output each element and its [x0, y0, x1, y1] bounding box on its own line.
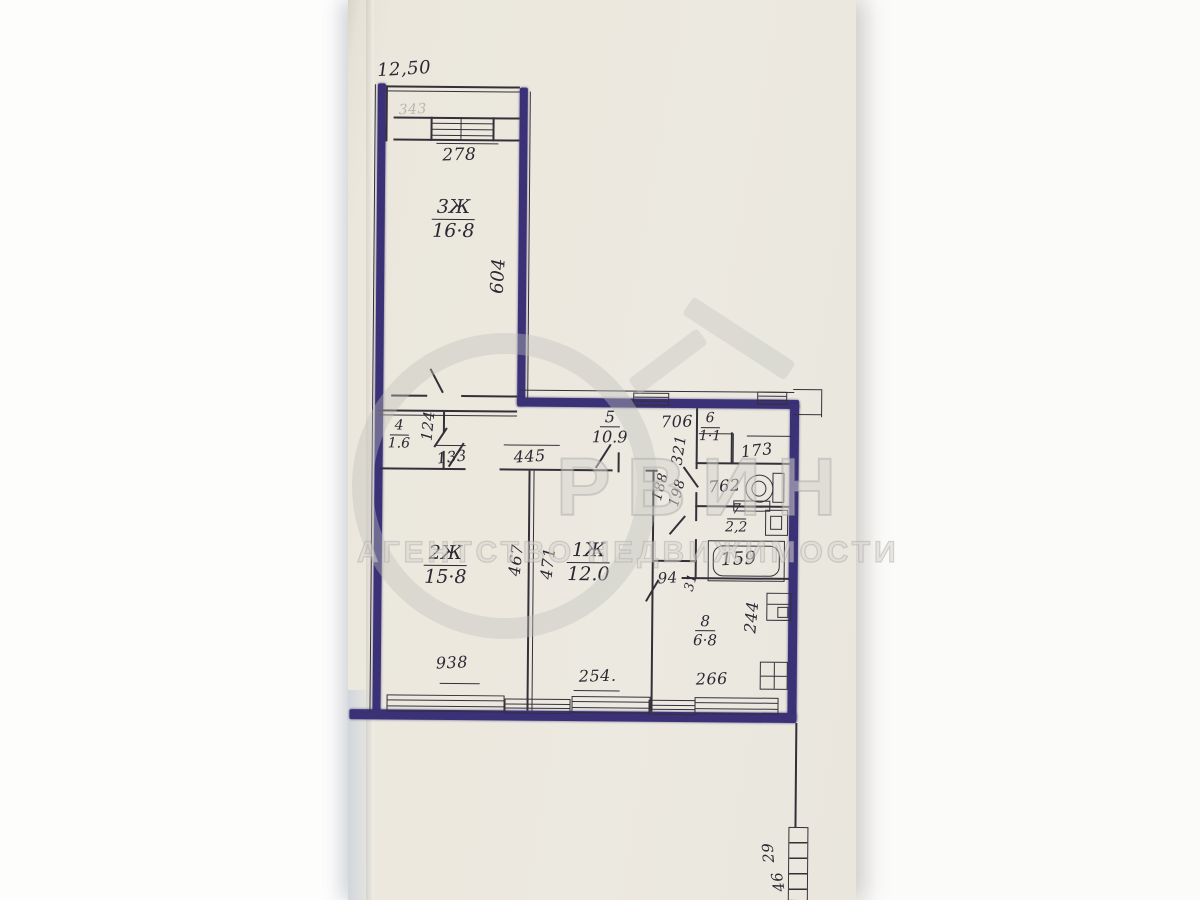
pencil-note: 343 — [398, 101, 427, 118]
door-swing — [430, 368, 444, 393]
dimension-604: 604 — [487, 257, 510, 294]
room-label-7: 7 2,2 — [725, 502, 748, 535]
window-icon — [757, 392, 787, 405]
room-area: 12.0 — [567, 562, 611, 584]
toilet-icon — [772, 473, 784, 503]
room-label-6: 6 1·1 — [699, 411, 722, 444]
sanitary-wall — [696, 408, 699, 469]
dimension-line — [733, 433, 734, 463]
door-swing — [595, 444, 612, 469]
balcony-rail — [386, 85, 520, 88]
room-number: 3Ж — [432, 197, 476, 220]
dimension-line — [440, 683, 480, 684]
stove-icon — [760, 662, 788, 690]
dimension-159: 159 — [720, 548, 757, 571]
room-area: 1·1 — [699, 428, 721, 444]
basin-inner — [770, 516, 782, 530]
window-jamb — [430, 117, 432, 141]
sanitary-wall — [695, 539, 697, 579]
outer-wall-room3-right — [517, 88, 528, 406]
room-number: 6 — [701, 411, 720, 428]
hatched-wall-icon — [788, 827, 809, 900]
wc-top-wall — [696, 462, 791, 465]
dimension-line — [574, 690, 620, 691]
room-area: 16·8 — [432, 219, 476, 241]
dimension-445: 445 — [513, 446, 546, 467]
corridor-top-wall — [378, 409, 517, 412]
dimension-266: 266 — [696, 669, 729, 689]
dimension-124: 124 — [418, 410, 439, 442]
room3-bottom-wall — [461, 395, 517, 397]
room-label-5: 5 10.9 — [592, 408, 628, 446]
corner-step — [793, 389, 822, 390]
sink-inner — [777, 607, 788, 618]
dimension-31: 31 — [682, 572, 701, 593]
room2-room1-wall — [526, 471, 530, 711]
dimension-94: 94 — [657, 568, 678, 587]
window-jamb — [492, 117, 494, 141]
room-area: 1.6 — [388, 436, 410, 452]
window-icon — [633, 393, 669, 406]
floor-plan-drawing: 12,50 278 604 124 133 445 706 321 173 18… — [0, 0, 1200, 900]
outer-wall-main-right — [787, 404, 799, 721]
balcony-side — [385, 85, 387, 141]
window-icon — [648, 700, 695, 715]
photo-of-floor-plan: 12,50 278 604 124 133 445 706 321 173 18… — [0, 0, 1200, 900]
corner-step — [821, 390, 822, 417]
corridor-room-wall — [500, 468, 613, 471]
room-number: 4 — [390, 418, 409, 435]
corridor-room-wall — [380, 467, 466, 470]
dimension-line — [747, 436, 792, 437]
dimension-471: 471 — [537, 546, 560, 580]
room-number: 5 — [600, 408, 620, 427]
measure-tick — [618, 452, 620, 472]
hall-top-wall — [653, 560, 697, 562]
dimension-133: 133 — [436, 446, 468, 467]
room-label-1: 1Ж 12.0 — [567, 540, 611, 584]
window-glazing — [432, 123, 494, 125]
balcony-rail-inner — [386, 90, 520, 92]
room-number: 8 — [695, 613, 715, 631]
window-glazing — [432, 129, 494, 131]
dimension-244: 244 — [740, 600, 762, 634]
room-area: 2,2 — [725, 519, 747, 535]
room-label-4: 4 1.6 — [388, 418, 411, 451]
dimension-938: 938 — [435, 652, 468, 672]
dimension-278: 278 — [442, 145, 476, 166]
room-area: 6·8 — [693, 631, 717, 648]
dimension-46: 46 — [767, 870, 788, 893]
dimension-706: 706 — [661, 412, 694, 432]
room-number: 1Ж — [567, 540, 611, 563]
room2-room1-wall-face — [531, 471, 534, 711]
room-area: 15·8 — [424, 565, 468, 587]
corridor-top-wall-inner — [378, 414, 517, 416]
dimension-12-50: 12,50 — [376, 57, 431, 81]
dimension-467: 467 — [505, 543, 528, 577]
dimension-762: 762 — [708, 475, 741, 496]
wall-face-line — [527, 92, 531, 398]
dimension-173: 173 — [740, 439, 774, 462]
window-glazing — [431, 135, 493, 137]
dimension-254: 254. — [579, 666, 617, 686]
room-label-3: 3Ж 16·8 — [432, 197, 476, 241]
window-jamb — [460, 117, 461, 141]
window-icon — [571, 696, 650, 714]
dimension-29: 29 — [759, 842, 779, 863]
window-icon — [694, 697, 778, 715]
dimension-321: 321 — [668, 434, 690, 466]
room-area: 10.9 — [592, 427, 628, 446]
lower-wall — [794, 723, 797, 827]
window-icon — [386, 694, 504, 712]
window-icon — [504, 698, 570, 714]
room-label-8: 8 6·8 — [693, 613, 717, 649]
room3-top-wall-inner — [393, 138, 519, 141]
room-number: 2Ж — [424, 543, 468, 566]
room-number: 7 — [727, 502, 746, 519]
toilet-bowl-inner — [751, 481, 766, 497]
door-swing — [669, 515, 686, 535]
room-label-2: 2Ж 15·8 — [424, 543, 468, 587]
room3-bottom-wall — [391, 394, 427, 396]
